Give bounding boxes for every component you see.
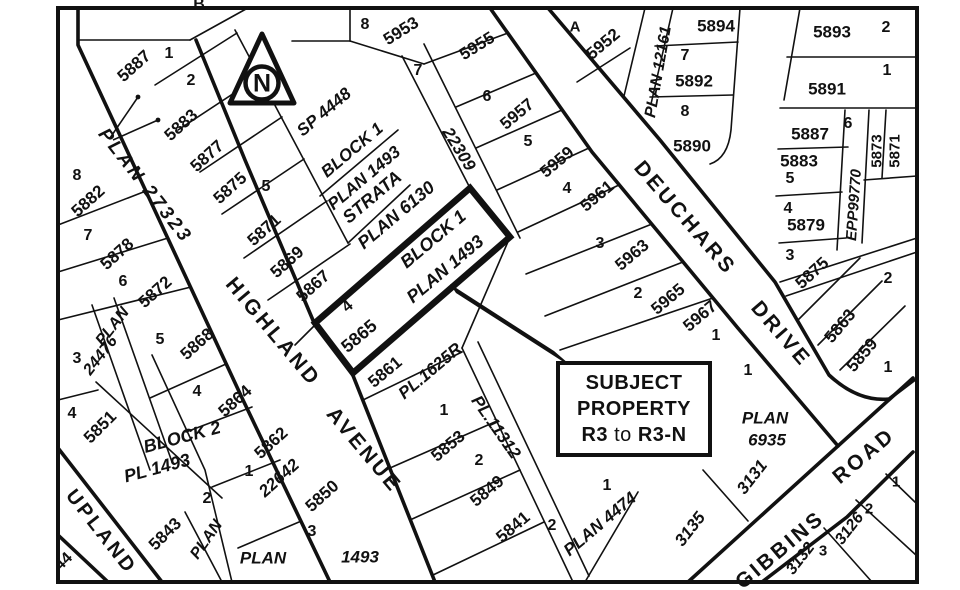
parcel-label: 3 [786,248,795,264]
parcel-label: 4 [193,384,202,400]
parcel-label: 5 [524,134,533,150]
parcel-label: 5843 [146,515,185,554]
parcel-label: 2 [865,502,873,517]
parcel-label: 1 [603,478,612,494]
parcel-label: 1 [245,464,254,480]
parcel-label: 8 [361,17,370,33]
parcel-label: 5882 [68,182,107,220]
callout-line-1: SUBJECT [586,372,683,395]
parcel-label: 2 [203,491,212,507]
zoning-map: N B8595375955A59522230965957559594596135… [0,0,960,590]
parcel-label: 2 [187,73,196,89]
parcel-label: 8 [681,104,690,120]
parcel-label: 6 [844,116,853,132]
parcel-label: 3 [308,524,317,540]
parcel-label: 5841 [493,508,533,545]
parcel-label: 5963 [612,236,652,273]
parcel-label: 5 [786,171,795,187]
parcel-label: 7 [414,63,423,79]
parcel-label: 5953 [380,14,421,48]
parcel-label: 5887 [114,47,153,85]
parcel-label: 4 [563,181,572,197]
parcel-label: 24476 [81,334,121,379]
parcel-label: 3135 [672,509,709,549]
parcel-label: 5877 [187,137,226,175]
parcel-label: 5872 [135,273,174,311]
parcel-label: 2 [548,518,557,534]
parcel-label: 3 [596,236,605,252]
parcel-label: 1 [440,403,449,419]
parcel-label: 5965 [648,280,688,317]
parcel-label: PL.1625R [395,340,465,402]
parcel-label: 5873 [870,134,885,167]
map-labels-layer: B8595375955A5952223096595755959459613596… [0,0,960,590]
parcel-label: B [193,0,205,13]
parcel-label: 5955 [456,29,497,63]
parcel-label: 5875 [210,169,249,207]
parcel-label: 5875 [792,254,831,292]
parcel-label: 44 [52,550,76,574]
parcel-label: 5862 [251,424,290,462]
parcel-label: 5892 [675,73,713,90]
parcel-label: 1 [712,328,721,344]
parcel-label: 3131 [734,457,771,497]
parcel-label: 2 [884,271,893,287]
parcel-label: EPP99770 [844,169,864,242]
parcel-label: 5890 [673,138,711,155]
parcel-label: PL 1493 [122,451,192,486]
street-name-label: DEUCHARS [630,157,740,279]
parcel-label: 3126 [833,510,868,548]
parcel-label: PLAN 12161 [643,25,675,119]
parcel-label: PLAN [240,550,286,567]
parcel-label: 5883 [161,106,200,144]
parcel-label: 5865 [338,316,380,356]
parcel-label: 5952 [583,25,623,62]
parcel-label: 8 [73,168,82,184]
parcel-label: 5851 [81,408,120,447]
parcel-label: 5894 [697,18,735,35]
parcel-label: 1 [884,360,893,376]
parcel-label: 1 [892,475,900,490]
parcel-label: 1 [744,363,753,379]
north-letter: N [253,70,271,99]
callout-line-2: PROPERTY [577,398,691,421]
parcel-label: 1 [165,46,174,62]
parcel-label: PLAN 4474 [561,489,640,559]
parcel-label: 5863 [821,306,858,346]
parcel-label: SP 4448 [294,85,354,140]
parcel-label: 5959 [537,143,577,180]
parcel-label: 5850 [302,477,341,515]
parcel-label: 5957 [497,95,537,132]
parcel-label: 3 [819,544,827,559]
parcel-label: 4 [339,298,356,316]
parcel-label: 5871 [244,211,283,249]
parcel-label: 5853 [428,427,468,464]
street-name-label: ROAD [829,424,899,488]
parcel-label: 4 [68,406,77,422]
street-name-label: PLAN 27323 [94,125,195,247]
parcel-label: 5893 [813,24,851,41]
parcel-label: 5864 [215,382,254,420]
parcel-label: 5887 [791,126,829,143]
parcel-label: 5891 [808,81,846,98]
street-name-label: UPLAND [62,486,140,578]
parcel-label: 5961 [577,177,617,214]
parcel-label: 7 [84,228,93,244]
parcel-label: 5 [262,179,271,195]
parcel-label: 2 [475,453,484,469]
parcel-label: 5878 [97,235,136,273]
parcel-label: 2 [882,20,891,36]
parcel-label: 6 [119,274,128,290]
callout-line-3: R3 to R3-N [581,424,686,447]
street-name-label: DRIVE [747,297,815,371]
parcel-label: 7 [681,48,690,64]
parcel-label: 1493 [341,549,379,566]
parcel-label: PLAN [188,518,226,563]
parcel-label: PLAN [742,410,788,427]
parcel-label: 6 [483,89,492,105]
parcel-label: 5868 [177,325,216,363]
parcel-label: 5869 [267,243,306,281]
parcel-label: 5849 [467,472,507,509]
parcel-label: 5883 [780,153,818,170]
parcel-label: 2 [634,286,643,302]
parcel-label: 3 [73,351,82,367]
parcel-label: 22309 [439,124,478,173]
parcel-label: 5859 [843,335,880,375]
parcel-label: 5867 [293,267,332,305]
parcel-label: 5 [156,332,165,348]
subject-property-callout[interactable]: SUBJECT PROPERTY R3 to R3-N [556,361,712,457]
parcel-label: 5871 [888,134,903,167]
parcel-label: 5879 [787,217,825,234]
parcel-label: 6935 [748,432,786,449]
parcel-label: 1 [883,63,892,79]
parcel-label: A [570,20,581,35]
